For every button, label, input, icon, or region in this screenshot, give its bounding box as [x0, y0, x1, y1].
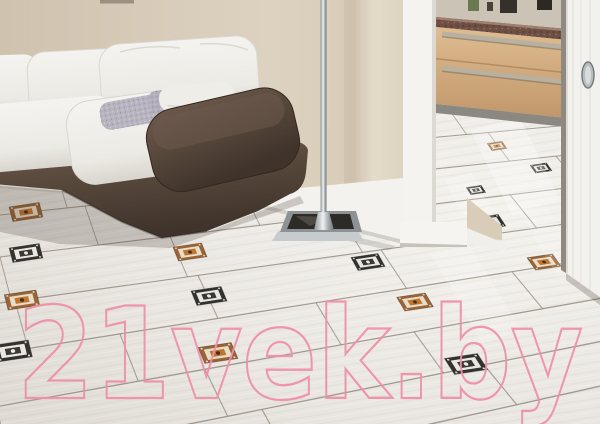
kitchen-view: [436, 0, 567, 127]
kitchen-faucet: [487, 2, 493, 11]
pillar-skirting-block: [400, 222, 467, 247]
pillar-edge-shade: [432, 0, 436, 222]
sliding-door: [561, 0, 600, 305]
door-panel: [566, 0, 600, 297]
kitchen-item-dark: [500, 0, 517, 13]
kitchen-item-dark: [537, 0, 552, 10]
lamp-base-rim: [272, 231, 364, 241]
watermark-21vek: 21vek.by: [17, 280, 583, 424]
wall-frame-sliver: [100, 0, 134, 4]
lamp-pole: [321, 0, 327, 216]
interior-photo: 21vek.by: [0, 0, 600, 424]
door-gap-shadow: [561, 0, 566, 273]
door-handle-inset: [585, 66, 591, 84]
kitchen-item-green: [468, 0, 479, 11]
doorway-pillar: [403, 0, 436, 222]
